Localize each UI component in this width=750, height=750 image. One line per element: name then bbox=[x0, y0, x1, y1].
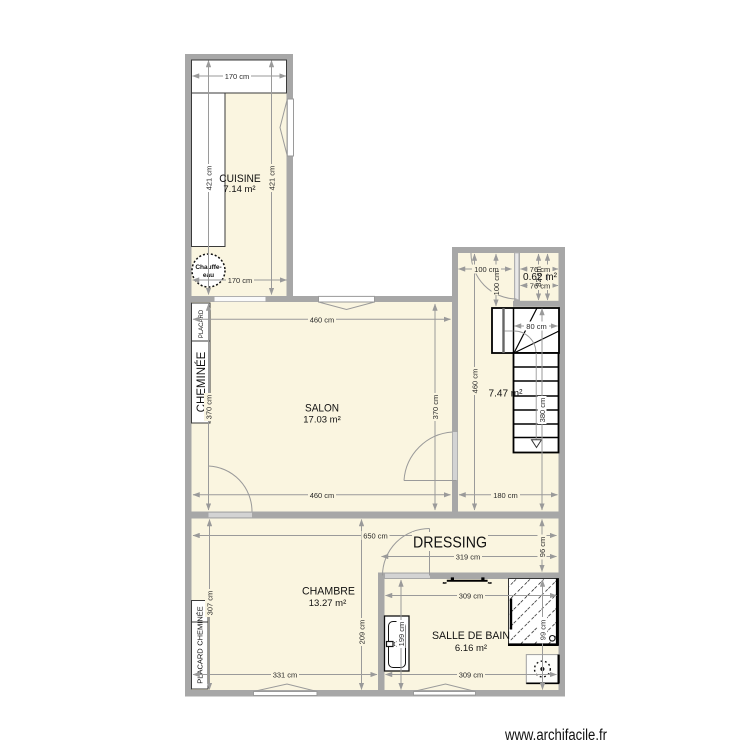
svg-text:0.62 m²: 0.62 m² bbox=[523, 272, 558, 283]
svg-text:180 cm: 180 cm bbox=[493, 491, 518, 500]
svg-text:309 cm: 309 cm bbox=[459, 592, 484, 601]
svg-text:SALLE DE BAIN: SALLE DE BAIN bbox=[432, 630, 510, 642]
svg-text:209 cm: 209 cm bbox=[358, 620, 367, 645]
svg-text:307 cm: 307 cm bbox=[206, 591, 215, 616]
svg-text:170 cm: 170 cm bbox=[228, 276, 253, 285]
svg-text:331 cm: 331 cm bbox=[273, 671, 298, 680]
svg-text:460 cm: 460 cm bbox=[471, 369, 480, 394]
svg-text:DRESSING: DRESSING bbox=[413, 535, 487, 552]
svg-text:17.03 m²: 17.03 m² bbox=[303, 415, 341, 426]
svg-text:PLACARD: PLACARD bbox=[196, 648, 205, 684]
svg-text:www.archifacile.fr: www.archifacile.fr bbox=[504, 727, 607, 744]
svg-text:199 cm: 199 cm bbox=[397, 622, 406, 647]
svg-text:380 cm: 380 cm bbox=[538, 398, 547, 423]
svg-text:99 cm: 99 cm bbox=[539, 620, 548, 640]
svg-text:370 cm: 370 cm bbox=[431, 395, 440, 420]
svg-text:319 cm: 319 cm bbox=[456, 553, 481, 562]
svg-text:460 cm: 460 cm bbox=[310, 491, 335, 500]
svg-text:96 cm: 96 cm bbox=[538, 537, 547, 557]
svg-text:6.16 m²: 6.16 m² bbox=[455, 643, 487, 654]
svg-text:421 cm: 421 cm bbox=[205, 166, 214, 191]
svg-text:650 cm: 650 cm bbox=[363, 532, 388, 541]
svg-text:100 cm: 100 cm bbox=[492, 271, 501, 296]
svg-text:7.47 m²: 7.47 m² bbox=[489, 389, 524, 400]
svg-text:421 cm: 421 cm bbox=[268, 166, 277, 191]
svg-text:13.27 m²: 13.27 m² bbox=[309, 598, 347, 609]
svg-text:309 cm: 309 cm bbox=[459, 671, 484, 680]
svg-text:CHAMBRE: CHAMBRE bbox=[302, 586, 355, 598]
svg-text:370 cm: 370 cm bbox=[205, 395, 214, 420]
svg-text:170 cm: 170 cm bbox=[225, 72, 250, 81]
svg-text:PLACARD: PLACARD bbox=[199, 309, 205, 338]
svg-text:7.14 m²: 7.14 m² bbox=[223, 184, 255, 195]
svg-text:CHEMINÉE: CHEMINÉE bbox=[196, 606, 205, 646]
svg-text:460 cm: 460 cm bbox=[310, 315, 335, 324]
svg-text:SALON: SALON bbox=[305, 403, 339, 415]
svg-text:80 cm: 80 cm bbox=[526, 322, 546, 331]
